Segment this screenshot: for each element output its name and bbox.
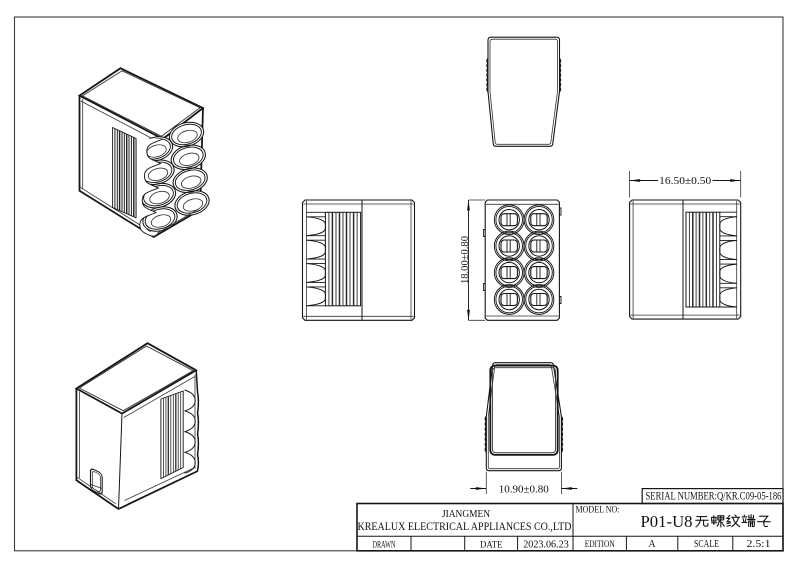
svg-text:DRAWN: DRAWN (373, 540, 396, 550)
svg-text:16.50±0.50: 16.50±0.50 (659, 176, 711, 187)
svg-text:JIANGMEN: JIANGMEN (442, 508, 490, 520)
svg-text:EDITION: EDITION (585, 540, 615, 550)
svg-text:10.90±0.80: 10.90±0.80 (499, 484, 549, 496)
svg-text:MODEL NO:: MODEL NO: (576, 505, 620, 515)
svg-text:KREALUX ELECTRICAL APPLIANCES: KREALUX ELECTRICAL APPLIANCES CO.,LTD (358, 521, 572, 533)
svg-text:A: A (648, 539, 656, 550)
svg-text:SCALE: SCALE (694, 539, 719, 550)
svg-text:18.00±0.80: 18.00±0.80 (459, 236, 471, 284)
svg-text:SERIAL NUMBER:Q/KR.C09-05-186: SERIAL NUMBER:Q/KR.C09-05-186 (646, 491, 782, 503)
svg-text:P01-U8: P01-U8 (641, 512, 693, 531)
svg-text:2023.06.23: 2023.06.23 (523, 539, 569, 550)
svg-text:DATE: DATE (480, 540, 503, 550)
svg-text:2.5:1: 2.5:1 (747, 539, 771, 550)
